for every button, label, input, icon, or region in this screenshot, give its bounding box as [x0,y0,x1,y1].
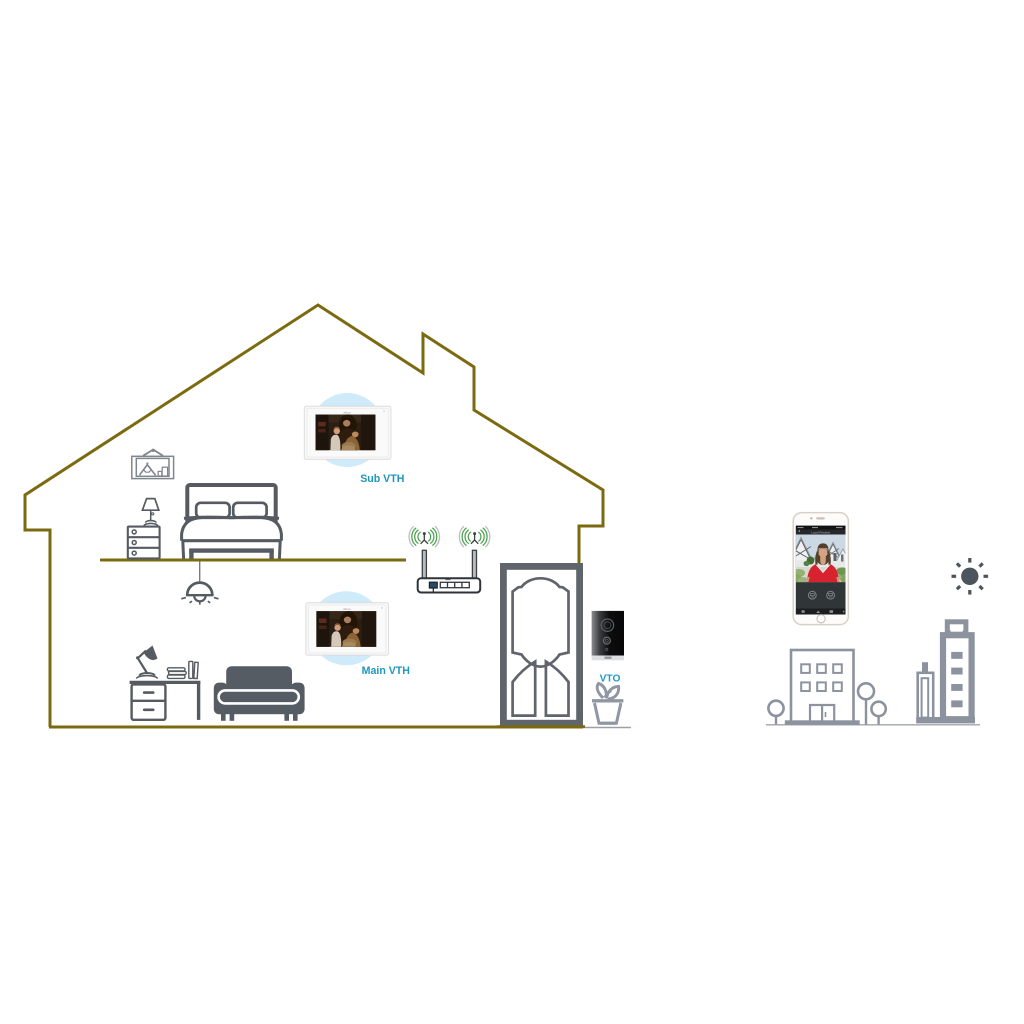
svg-text:Sub VTH: Sub VTH [360,473,404,485]
svg-text:alhua: alhua [343,607,351,611]
svg-text:Main VTH: Main VTH [362,665,410,677]
svg-text:Local Preview: Local Preview [811,530,831,534]
svg-text:alhua: alhua [343,411,351,415]
svg-text:VTO: VTO [600,674,621,685]
